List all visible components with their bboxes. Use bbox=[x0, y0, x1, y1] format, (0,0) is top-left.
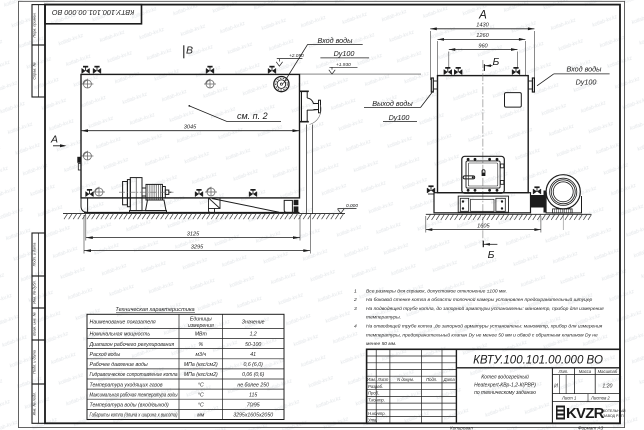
svg-text:115: 115 bbox=[249, 392, 257, 398]
svg-text:Копировал: Копировал bbox=[450, 426, 473, 430]
svg-text:3045: 3045 bbox=[184, 124, 197, 130]
svg-text:КВТУ.100.101.00.000 ВО: КВТУ.100.101.00.000 ВО bbox=[473, 354, 603, 366]
svg-text:Формат А3: Формат А3 bbox=[578, 426, 604, 430]
svg-text:В: В bbox=[186, 45, 193, 57]
svg-text:Инв. № подл.: Инв. № подл. bbox=[33, 392, 37, 416]
svg-text:Лит.: Лит. bbox=[558, 369, 569, 374]
svg-text:не более 250: не более 250 bbox=[237, 382, 269, 388]
svg-text:Габариты котла (длина х ширина: Габариты котла (длина х ширина х высота) bbox=[90, 413, 178, 419]
svg-text:Т.контр.: Т.контр. bbox=[368, 397, 385, 402]
svg-text:Проб.: Проб. bbox=[368, 391, 379, 396]
svg-text:Температура уходящих газов: Температура уходящих газов bbox=[90, 382, 163, 388]
svg-text:температуры, предохранительный: температуры, предохранительный клапан Dy… bbox=[366, 331, 598, 338]
svg-text:МВт: МВт bbox=[195, 332, 208, 338]
svg-text:Выход воды: Выход воды bbox=[372, 99, 413, 108]
svg-text:1: 1 bbox=[354, 288, 357, 294]
svg-text:°С: °С bbox=[198, 403, 204, 409]
svg-text:2: 2 bbox=[353, 297, 357, 303]
svg-text:Гидравлическое сопротивление к: Гидравлическое сопротивление котла bbox=[90, 372, 178, 378]
svg-text:На подводящей трубе котла, до: На подводящей трубе котла, до запорной а… bbox=[366, 305, 604, 312]
svg-text:Расход воды: Расход воды bbox=[90, 352, 121, 358]
svg-text:Вход воды: Вход воды bbox=[567, 64, 603, 73]
svg-text:0,6 (6,0): 0,6 (6,0) bbox=[244, 362, 264, 368]
svg-text:3125: 3125 bbox=[187, 231, 200, 237]
svg-text:Масштаб: Масштаб bbox=[598, 369, 618, 374]
svg-text:Н.контр.: Н.контр. bbox=[368, 411, 386, 416]
svg-text:Рабочее давление воды: Рабочее давление воды bbox=[90, 362, 148, 368]
svg-text:Изм.: Изм. bbox=[367, 377, 376, 382]
svg-text:А: А bbox=[50, 133, 58, 145]
svg-text:Перв. примен.: Перв. примен. bbox=[33, 12, 37, 37]
svg-text:температуры.: температуры. bbox=[366, 316, 401, 321]
svg-text:Heatexpert-КВр-1,2-К(РВР): Heatexpert-КВр-1,2-К(РВР) bbox=[474, 382, 536, 388]
svg-text:Максимальная рабочая температу: Максимальная рабочая температура воды bbox=[90, 392, 178, 398]
svg-text:N докум.: N докум. bbox=[397, 377, 414, 382]
svg-text:Инв. № дубл.: Инв. № дубл. bbox=[33, 280, 37, 303]
svg-text:Б: Б bbox=[488, 249, 495, 261]
svg-text:Вход воды: Вход воды bbox=[318, 36, 354, 45]
svg-text:менее 50 мм.: менее 50 мм. bbox=[366, 341, 396, 347]
svg-text:измерения: измерения bbox=[188, 323, 214, 329]
svg-text:Дата: Дата bbox=[443, 377, 456, 382]
svg-text:Утв.: Утв. bbox=[368, 418, 378, 423]
svg-text:Подп. и дата: Подп. и дата bbox=[33, 350, 37, 374]
svg-text:Взам. инв. №: Взам. инв. № bbox=[33, 312, 37, 335]
svg-text:КОТЕЛЬНЫЙ: КОТЕЛЬНЫЙ bbox=[603, 409, 626, 413]
svg-text:Dy100: Dy100 bbox=[576, 78, 597, 87]
svg-text:Все размеры для справок, допус: Все размеры для справок, допустимое откл… bbox=[366, 288, 507, 294]
svg-text:%: % bbox=[198, 342, 203, 348]
svg-text:Техническая характеристика: Техническая характеристика bbox=[115, 307, 194, 313]
svg-text:Значение: Значение bbox=[242, 320, 265, 326]
svg-text:Справ. №: Справ. № bbox=[33, 62, 37, 79]
svg-text:50-100: 50-100 bbox=[245, 342, 261, 348]
svg-text:м3/ч: м3/ч bbox=[196, 352, 207, 358]
svg-text:Б: Б bbox=[493, 56, 500, 68]
svg-text:70/95: 70/95 bbox=[247, 403, 260, 409]
svg-text:41: 41 bbox=[250, 352, 256, 358]
svg-text:Dy100: Dy100 bbox=[389, 113, 410, 122]
svg-text:3: 3 bbox=[354, 306, 357, 312]
svg-text:Диапазон рабочего регулировани: Диапазон рабочего регулирования bbox=[89, 342, 175, 348]
svg-text:Единицы: Единицы bbox=[190, 317, 212, 323]
svg-text:МПа (кгс/см2): МПа (кгс/см2) bbox=[184, 362, 218, 368]
svg-text:Подп. и дата: Подп. и дата bbox=[33, 243, 37, 267]
svg-text:А: А bbox=[478, 9, 487, 21]
svg-text:KVZR: KVZR bbox=[566, 405, 605, 422]
svg-text:1,2: 1,2 bbox=[250, 332, 257, 338]
svg-text:Температура воды (вход/выход): Температура воды (вход/выход) bbox=[90, 403, 169, 409]
svg-text:Листов 2: Листов 2 bbox=[590, 395, 610, 400]
svg-text:+1.930: +1.930 bbox=[336, 62, 351, 68]
svg-text:МПа (кгс/см2): МПа (кгс/см2) bbox=[184, 372, 218, 378]
svg-text:На боковой стенке котла в обла: На боковой стенке котла в области топочн… bbox=[366, 296, 593, 303]
svg-text:3295х1605х2050: 3295х1605х2050 bbox=[233, 413, 273, 419]
svg-text:Лист 1: Лист 1 bbox=[561, 395, 576, 400]
svg-text:Dy100: Dy100 bbox=[334, 49, 355, 58]
svg-text:°С: °С bbox=[198, 392, 204, 398]
svg-text:°С: °С bbox=[198, 382, 204, 388]
svg-text:960: 960 bbox=[478, 43, 488, 49]
svg-text:Котел водогрейный: Котел водогрейный bbox=[481, 374, 529, 381]
svg-text:мм: мм bbox=[197, 413, 205, 419]
svg-text:Номинальная мощность: Номинальная мощность bbox=[90, 332, 151, 338]
svg-text:Масса: Масса bbox=[579, 369, 592, 374]
svg-text:0,06 (0,6): 0,06 (0,6) bbox=[242, 372, 264, 378]
svg-text:по техническому заданию: по техническому заданию bbox=[474, 390, 536, 396]
svg-text:Разраб.: Разраб. bbox=[368, 384, 383, 389]
svg-text:1260: 1260 bbox=[476, 33, 489, 39]
svg-text:1605: 1605 bbox=[477, 223, 490, 229]
svg-text:4: 4 bbox=[354, 324, 357, 330]
svg-text:И: И bbox=[554, 384, 558, 390]
svg-text:КВТУ.100.101.00.000 ВО: КВТУ.100.101.00.000 ВО bbox=[52, 8, 135, 17]
svg-text:1:20: 1:20 bbox=[602, 384, 612, 390]
svg-text:Лист: Лист bbox=[377, 377, 389, 382]
svg-text:см. п. 2: см. п. 2 bbox=[237, 111, 268, 121]
svg-text:ЗАВОД РЭП: ЗАВОД РЭП bbox=[603, 414, 624, 418]
svg-text:1430: 1430 bbox=[476, 23, 489, 29]
svg-text:На отводящей трубе котла ,до з: На отводящей трубе котла ,до запорной ар… bbox=[366, 323, 603, 330]
svg-text:3295: 3295 bbox=[191, 244, 204, 250]
svg-text:Наименование показателя: Наименование показателя bbox=[90, 320, 156, 326]
svg-text:Подп.: Подп. bbox=[426, 377, 437, 382]
